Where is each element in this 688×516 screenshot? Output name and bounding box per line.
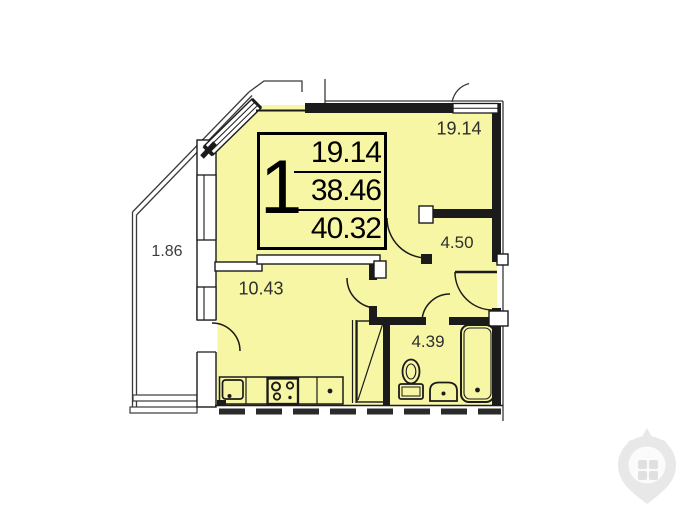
living-area-value: 19.14 [294, 135, 381, 173]
hall-wall-notch [419, 206, 433, 223]
hall-left-wall-lower [369, 306, 377, 325]
entrance-jamb-lower [489, 311, 508, 326]
apartment-info-box: 1 19.14 38.46 40.32 [257, 132, 387, 250]
areas-column: 19.14 38.46 40.32 [294, 135, 384, 247]
counter-dot [328, 389, 333, 394]
developer-watermark-logo [618, 428, 676, 504]
floor-plan-drawing [0, 0, 688, 516]
exterior-door-swing-line [452, 84, 469, 103]
hallway-area-label: 4.50 [440, 233, 473, 253]
living-room-area-label: 19.14 [436, 119, 481, 140]
total-area-value: 40.32 [294, 211, 381, 247]
hall-top-wall [430, 209, 497, 218]
balcony-window-lower [197, 287, 216, 320]
bathroom-area-label: 4.39 [411, 332, 444, 352]
bottom-wall [215, 406, 503, 412]
balcony-window-upper [197, 175, 216, 240]
kitchen-area-label: 10.43 [238, 279, 283, 300]
right-wall-upper [492, 103, 501, 262]
floor-plan-page: 19.14 4.50 10.43 4.39 1.86 1 19.14 38.46… [0, 0, 688, 516]
balcony-wall [196, 140, 218, 407]
rooms-count: 1 [260, 135, 294, 247]
door-leaf-block [421, 254, 432, 264]
balcony-area-label: 1.86 [151, 243, 182, 261]
top-wall-window [453, 104, 498, 114]
top-wall [305, 103, 455, 113]
reduced-area-value: 38.46 [294, 173, 381, 211]
entrance-jamb-upper [497, 254, 508, 265]
